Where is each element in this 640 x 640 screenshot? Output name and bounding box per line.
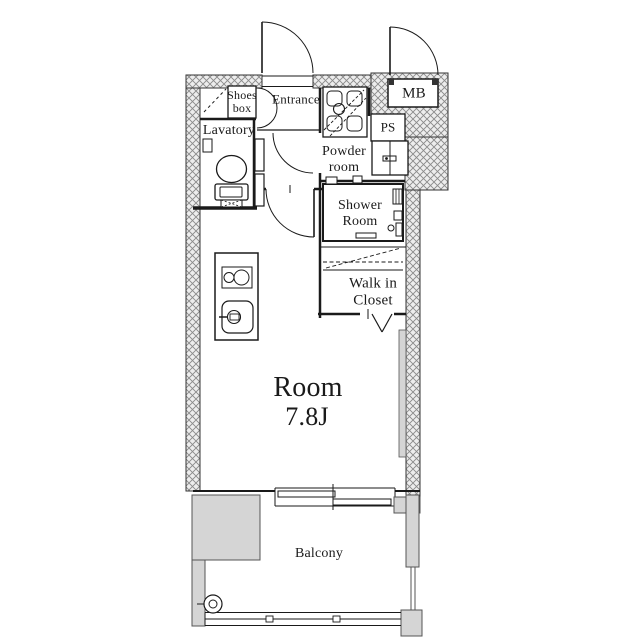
mb-door-arc [390,27,438,75]
label-main-room-size: 7.8J [285,404,328,430]
powder-door-arc [273,133,313,173]
label-entrance: Entrance [272,93,320,106]
label-shoes-box-line2: box [233,102,252,114]
label-shoes-box-line1: Shoes [227,89,257,101]
label-meter-box: MB [402,87,426,102]
label-powder-room-line2: room [329,161,359,175]
label-main-room-name: Room [273,374,342,402]
room-door-arc [266,185,314,237]
balcony-railing [205,613,401,626]
label-walk-in-closet-line1: Walk in [349,277,397,292]
vanity-icon [323,87,367,137]
closet-hanger [323,248,403,270]
label-pipe-space: PS [381,121,396,134]
closet-folding-door [368,309,392,332]
floorplan-canvas: Shoes box Entrance Lavatory MB PS Powder… [0,0,640,640]
label-shower-room-line1: Shower [338,199,382,213]
label-powder-room-line1: Powder [322,145,366,159]
water-heater-icon [372,141,408,175]
balcony-walls [192,495,422,636]
kitchen-icon [215,253,258,340]
label-shower-room-line2: Room [342,215,377,229]
entrance-threshold [262,76,313,87]
label-walk-in-closet-line2: Closet [353,294,393,309]
balcony-partition [411,567,415,610]
pillar [399,330,406,457]
entrance-door-arc [262,22,313,73]
label-balcony: Balcony [295,547,343,561]
label-lavatory: Lavatory [203,124,255,138]
window-sliding [275,484,395,510]
lavatory-door [255,139,264,206]
